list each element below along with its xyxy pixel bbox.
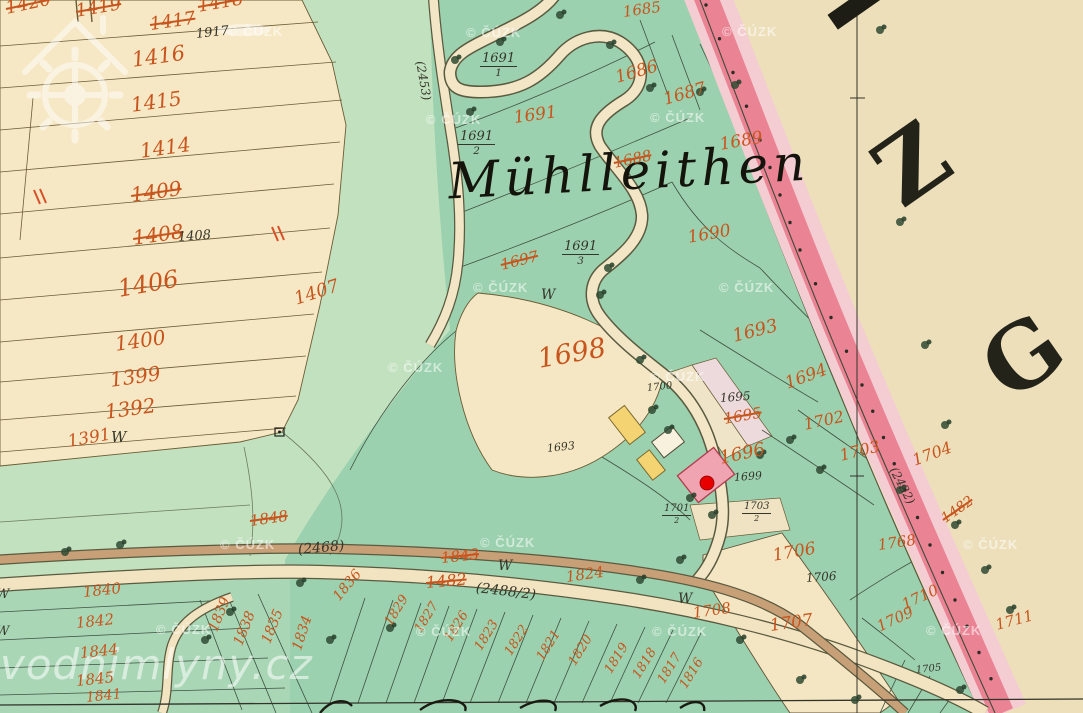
parcel-number-label: 1823 <box>472 618 501 653</box>
parcel-number-label: 1822 <box>502 623 531 658</box>
ink-label: (2453) <box>414 60 433 101</box>
cadastral-map: Mühlleithen Z G vodnimlyny.cz 1420141914… <box>0 0 1083 713</box>
parcel-number-label: 1687 <box>662 80 708 108</box>
parcel-number-label: 1824 <box>565 565 605 585</box>
parcel-fraction-label: 16913 <box>562 240 599 266</box>
cuzk-watermark: © ČÚZK <box>652 624 707 639</box>
ink-label: 1695 <box>720 390 751 404</box>
parcel-number-label: 1711 <box>994 608 1035 632</box>
ink-label: 1408 <box>178 229 212 244</box>
parcel-number-label: 1707 <box>769 612 814 635</box>
parcel-fraction-label: 17012 <box>662 504 691 525</box>
meadow-w-mark: W <box>678 592 692 606</box>
parcel-fraction-label: 16911 <box>480 52 517 78</box>
parcel-number-label: 1844 <box>79 642 119 661</box>
ink-label: 1705 <box>915 663 941 676</box>
parcel-number-label: 1417 <box>149 10 197 34</box>
parcel-number-label: 1848 <box>249 509 289 529</box>
parcel-number-label: 1690 <box>687 223 733 247</box>
parcel-number-label: 1685 <box>622 0 662 20</box>
parcel-number-label: 1819 <box>602 641 631 676</box>
parcel-number-label: 1820 <box>566 633 595 668</box>
cuzk-watermark: © ČÚZK <box>926 623 981 638</box>
cuzk-watermark: © ČÚZK <box>426 112 481 127</box>
parcel-number-label: 1691 <box>513 104 558 127</box>
meadow-w-mark: W <box>111 430 126 445</box>
meadow-w-mark: W <box>541 288 555 302</box>
parcel-number-label: 1686 <box>614 58 660 86</box>
parcel-number-label: 1845 <box>75 670 115 689</box>
parcel-number-label: 1703 <box>838 438 881 463</box>
ink-label: (2488/2) <box>475 581 536 602</box>
cuzk-watermark: © ČÚZK <box>650 110 705 125</box>
parcel-number-label: 1829 <box>382 593 411 628</box>
parcel-number-label: 1399 <box>109 363 162 390</box>
parcel-number-label: 1418 <box>196 0 244 16</box>
brand-watermark-logo <box>0 0 150 150</box>
parcel-number-label: 1695 <box>723 405 763 426</box>
parcel-number-label: 1706 <box>772 541 818 565</box>
parcel-number-label: 1391 <box>67 427 113 451</box>
parcel-number-label: 1821 <box>534 628 563 663</box>
ink-label: (2468) <box>297 539 345 557</box>
parcel-number-label: 1392 <box>104 395 157 422</box>
ink-label: 1917 <box>195 25 229 41</box>
cuzk-watermark: © ČÚZK <box>722 24 777 39</box>
parcel-number-label: 1702 <box>802 409 845 433</box>
parcel-number-label: 1841 <box>85 687 122 705</box>
parcel-number-label: 1482 <box>425 571 467 590</box>
cuzk-watermark: © ČÚZK <box>719 280 774 295</box>
parcel-number-label: 1836 <box>331 567 365 603</box>
sheet-letter-z: Z <box>858 107 966 221</box>
ink-label: 1706 <box>806 570 837 584</box>
parcel-number-label: 1842 <box>75 612 115 631</box>
cuzk-watermark: © ČÚZK <box>220 537 275 552</box>
parcel-number-label: 1407 <box>292 277 341 308</box>
cuzk-watermark: © ČÚZK <box>963 537 1018 552</box>
ink-label: (2432) <box>888 465 917 506</box>
meadow-w-mark: W <box>498 559 512 573</box>
cuzk-watermark: © ČÚZK <box>156 622 211 637</box>
cuzk-watermark: © ČÚZK <box>466 25 521 40</box>
parcel-number-label: 1698 <box>536 334 608 373</box>
parcel-number-label: 1843 <box>440 547 480 566</box>
cuzk-watermark: © ČÚZK <box>416 624 471 639</box>
parcel-number-label: 1696 <box>718 441 767 468</box>
parcel-number-label: 1708 <box>692 601 732 621</box>
parcel-number-label: 1409 <box>130 178 183 205</box>
cuzk-watermark: © ČÚZK <box>650 369 705 384</box>
cuzk-watermark: © ČÚZK <box>480 535 535 550</box>
parcel-number-label: 1709 <box>875 605 916 635</box>
parcel-number-label: 1697 <box>499 249 540 273</box>
parcel-number-label: 1694 <box>783 362 829 393</box>
sheet-letter-fragment <box>828 0 899 30</box>
parcel-number-label: 1400 <box>114 327 167 354</box>
map-label-layer: Mühlleithen Z G vodnimlyny.cz 1420141914… <box>0 0 1083 713</box>
parcel-number-label: 1482 <box>939 494 976 526</box>
parcel-number-label: 1768 <box>877 533 917 553</box>
parcel-number-label: 1704 <box>910 440 954 469</box>
parcel-fraction-label: 16912 <box>458 130 495 156</box>
cuzk-watermark: © ČÚZK <box>388 360 443 375</box>
meadow-w-mark: W <box>0 588 9 601</box>
cuzk-watermark: © ČÚZK <box>228 24 283 39</box>
ink-label: 1699 <box>734 470 763 483</box>
ink-label: 1693 <box>546 440 575 454</box>
parcel-number-label: 1406 <box>116 267 180 301</box>
meadow-w-mark: W <box>0 625 9 638</box>
brand-watermark-text: vodnimlyny.cz <box>0 640 313 689</box>
cuzk-watermark: © ČÚZK <box>473 280 528 295</box>
sheet-letter-g: G <box>967 298 1079 413</box>
parcel-fraction-label: 17032 <box>742 502 771 523</box>
parcel-number-label: 1840 <box>82 581 122 600</box>
parcel-number-label: 1818 <box>630 646 659 681</box>
parcel-number-label: 1693 <box>731 317 780 346</box>
